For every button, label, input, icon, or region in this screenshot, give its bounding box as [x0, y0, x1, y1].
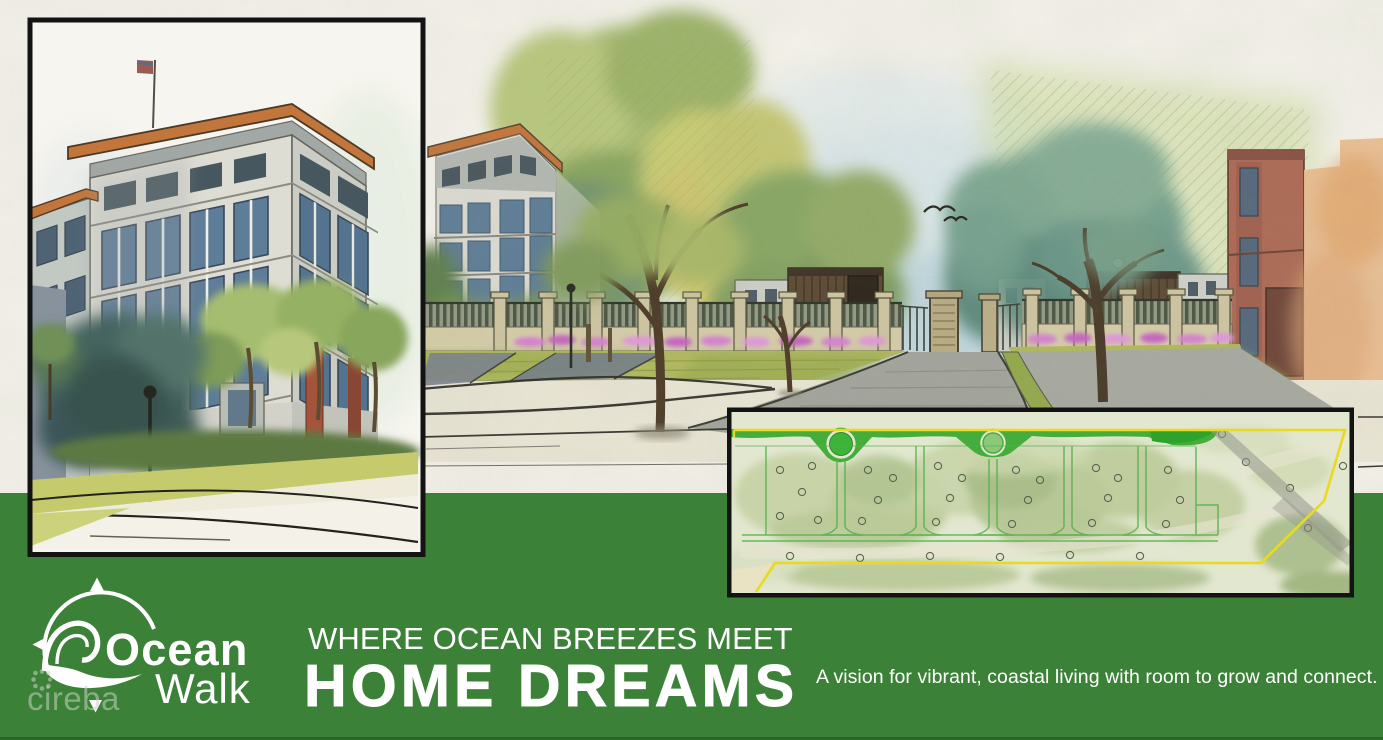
svg-text:Walk: Walk [155, 665, 251, 712]
svg-text:WHERE OCEAN BREEZES MEET: WHERE OCEAN BREEZES MEET [308, 621, 793, 656]
svg-text:HOME DREAMS: HOME DREAMS [304, 653, 798, 719]
svg-text:cireba: cireba [27, 680, 120, 717]
svg-text:A vision for vibrant, coastal: A vision for vibrant, coastal living wit… [816, 666, 1378, 688]
